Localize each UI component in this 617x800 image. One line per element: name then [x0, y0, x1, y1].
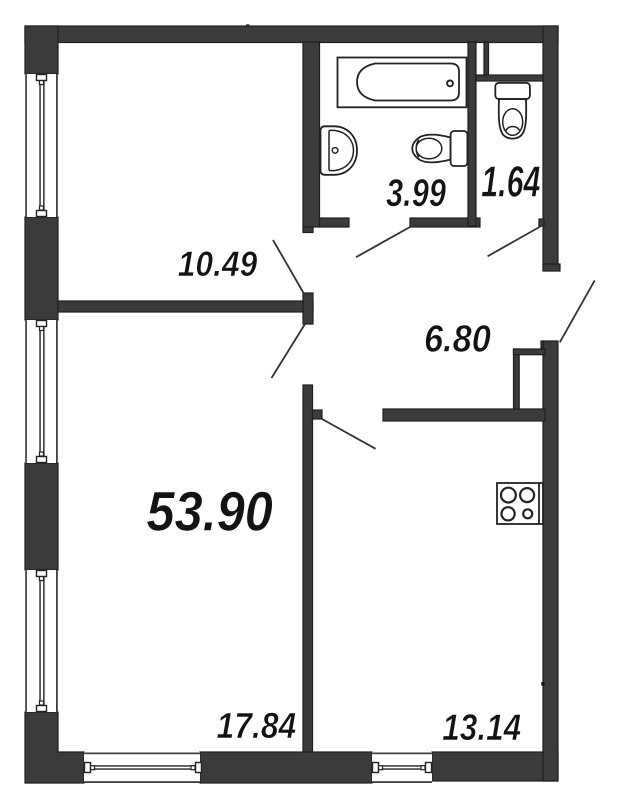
- svg-text:13.14: 13.14: [442, 708, 521, 749]
- svg-text:6.80: 6.80: [424, 317, 491, 360]
- svg-text:1.64: 1.64: [481, 158, 540, 207]
- svg-text:17.84: 17.84: [217, 706, 297, 746]
- svg-text:53.90: 53.90: [147, 481, 273, 543]
- svg-text:10.49: 10.49: [178, 245, 258, 284]
- svg-text:3.99: 3.99: [386, 171, 446, 214]
